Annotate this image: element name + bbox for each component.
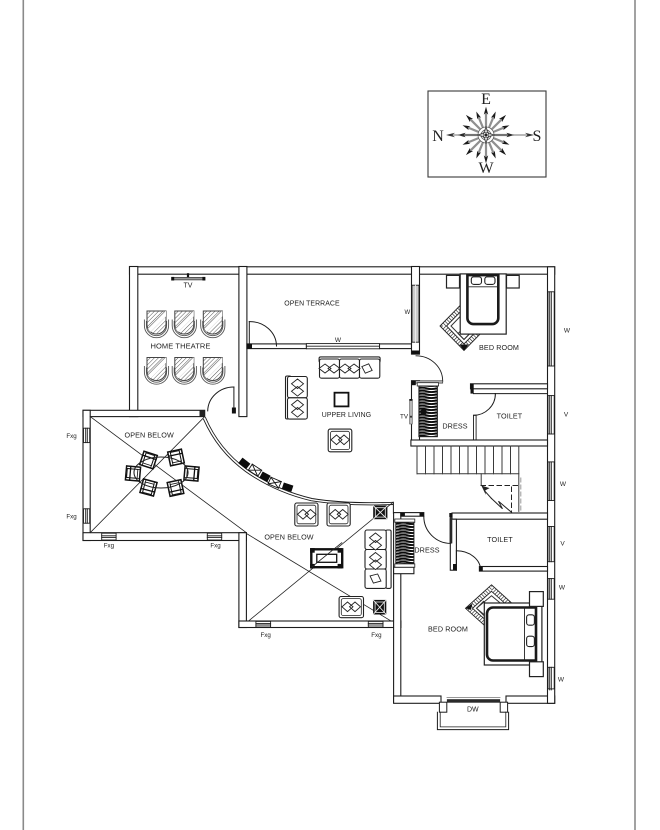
- svg-text:W: W: [335, 337, 342, 344]
- svg-text:DRESS: DRESS: [442, 422, 467, 431]
- svg-text:W: W: [564, 328, 571, 335]
- svg-text:BED ROOM: BED ROOM: [428, 625, 468, 634]
- svg-text:DW: DW: [467, 706, 479, 713]
- svg-text:DRESS: DRESS: [414, 546, 439, 555]
- svg-text:Fxg: Fxg: [371, 632, 382, 639]
- svg-text:UPPER LIVING: UPPER LIVING: [322, 412, 371, 419]
- svg-text:OPEN BELOW: OPEN BELOW: [264, 533, 313, 542]
- svg-text:Fxg: Fxg: [104, 543, 115, 550]
- svg-text:Fxg: Fxg: [66, 514, 77, 521]
- svg-text:TOILET: TOILET: [487, 535, 513, 544]
- svg-text:W: W: [559, 585, 566, 592]
- svg-text:W: W: [560, 481, 567, 488]
- svg-text:Fxg: Fxg: [66, 433, 77, 440]
- svg-text:N: N: [432, 128, 444, 145]
- svg-text:E: E: [481, 91, 491, 108]
- svg-text:OPEN BELOW: OPEN BELOW: [125, 431, 174, 440]
- svg-text:V: V: [564, 412, 569, 419]
- svg-text:V: V: [560, 541, 565, 548]
- svg-text:W: W: [404, 310, 410, 316]
- svg-text:W: W: [558, 677, 565, 684]
- svg-text:OPEN TERRACE: OPEN TERRACE: [284, 301, 340, 308]
- svg-text:W: W: [478, 160, 494, 177]
- svg-text:Fxg: Fxg: [210, 543, 221, 550]
- svg-text:S: S: [533, 128, 542, 145]
- svg-text:Fxg: Fxg: [261, 632, 272, 639]
- svg-text:HOME THEATRE: HOME THEATRE: [150, 341, 210, 350]
- svg-text:TV: TV: [400, 414, 409, 421]
- svg-text:BED ROOM: BED ROOM: [479, 343, 519, 352]
- svg-text:TOILET: TOILET: [497, 411, 523, 420]
- svg-text:TV: TV: [184, 283, 193, 290]
